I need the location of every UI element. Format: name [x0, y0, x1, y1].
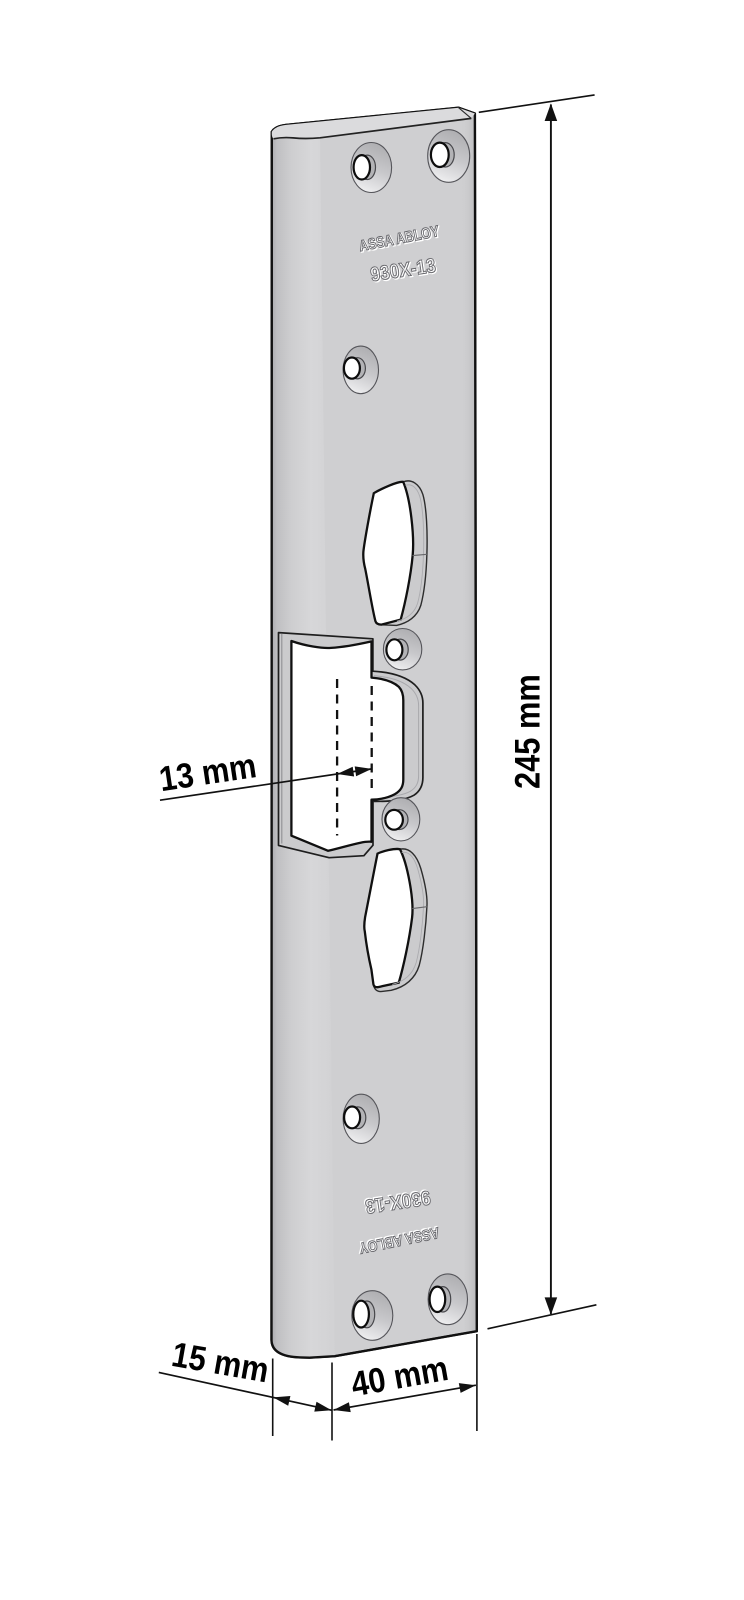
svg-text:40 mm: 40 mm — [348, 1348, 451, 1404]
svg-text:15 mm: 15 mm — [169, 1334, 272, 1390]
svg-text:13 mm: 13 mm — [157, 745, 259, 798]
svg-text:245 mm: 245 mm — [508, 674, 547, 789]
